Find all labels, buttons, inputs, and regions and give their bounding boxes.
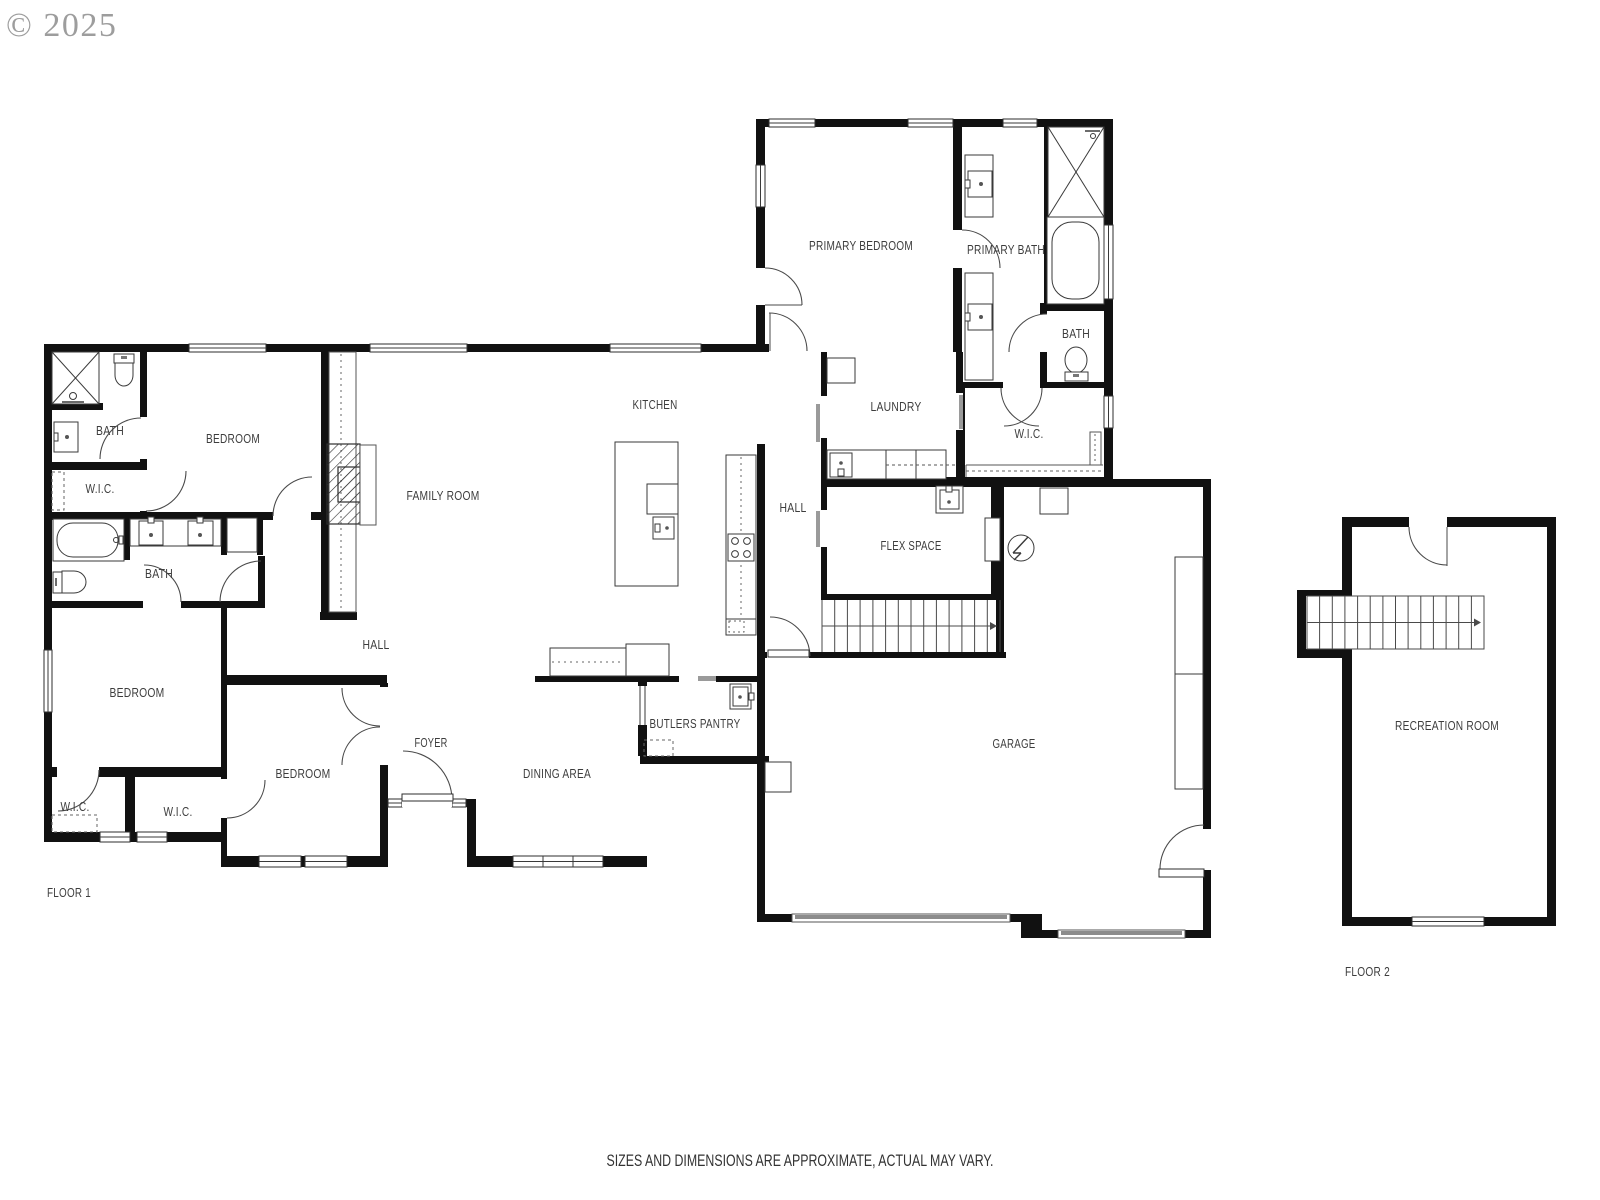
svg-text:LAUNDRY: LAUNDRY — [871, 400, 922, 414]
svg-text:HALL: HALL — [363, 638, 390, 652]
svg-text:W.I.C.: W.I.C. — [164, 805, 193, 819]
svg-text:BEDROOM: BEDROOM — [276, 767, 331, 781]
svg-text:FOYER: FOYER — [415, 736, 448, 750]
svg-text:FLOOR 2: FLOOR 2 — [1345, 965, 1390, 979]
svg-text:FLEX SPACE: FLEX SPACE — [881, 539, 942, 553]
svg-text:W.I.C.: W.I.C. — [61, 800, 90, 814]
svg-text:FLOOR 1: FLOOR 1 — [47, 886, 91, 900]
svg-text:BEDROOM: BEDROOM — [110, 686, 165, 700]
svg-text:© 2025: © 2025 — [6, 7, 117, 44]
svg-text:BUTLERS PANTRY: BUTLERS PANTRY — [650, 717, 741, 731]
svg-text:BATH: BATH — [1062, 327, 1090, 341]
svg-text:HALL: HALL — [780, 501, 807, 515]
svg-text:BATH: BATH — [96, 424, 124, 438]
svg-text:BEDROOM: BEDROOM — [206, 432, 260, 446]
svg-text:BATH: BATH — [145, 567, 173, 581]
svg-text:FAMILY ROOM: FAMILY ROOM — [407, 489, 480, 503]
svg-text:RECREATION ROOM: RECREATION ROOM — [1395, 719, 1499, 733]
svg-text:DINING AREA: DINING AREA — [523, 767, 591, 781]
svg-text:W.I.C.: W.I.C. — [86, 482, 115, 496]
svg-text:W.I.C.: W.I.C. — [1015, 427, 1044, 441]
svg-text:PRIMARY BATH: PRIMARY BATH — [967, 243, 1045, 257]
svg-text:GARAGE: GARAGE — [993, 737, 1036, 751]
svg-text:KITCHEN: KITCHEN — [633, 398, 678, 412]
svg-text:SIZES AND DIMENSIONS ARE APPRO: SIZES AND DIMENSIONS ARE APPROXIMATE, AC… — [607, 1152, 994, 1170]
svg-text:PRIMARY BEDROOM: PRIMARY BEDROOM — [809, 239, 913, 253]
